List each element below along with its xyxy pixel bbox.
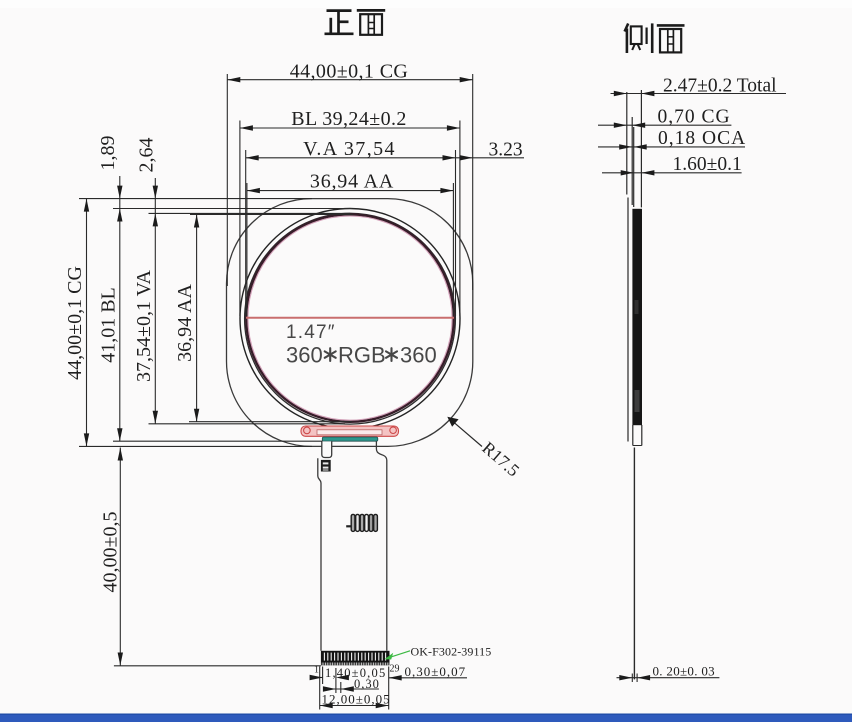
svg-text:OK-F302-39115: OK-F302-39115	[411, 645, 492, 659]
svg-text:RGB: RGB	[338, 343, 386, 368]
svg-text:0,30±0,07: 0,30±0,07	[405, 664, 467, 679]
svg-text:2,64: 2,64	[136, 138, 158, 173]
svg-text:1,89: 1,89	[97, 136, 119, 171]
svg-text:0,70 CG: 0,70 CG	[658, 106, 731, 127]
svg-text:1.60±0.1: 1.60±0.1	[673, 154, 742, 175]
svg-text:1.47″: 1.47″	[286, 322, 336, 343]
svg-text:2.47±0.2 Total: 2.47±0.2 Total	[663, 76, 777, 97]
svg-text:36,94 AA: 36,94 AA	[174, 284, 196, 362]
svg-text:37,54±0,1 VA: 37,54±0,1 VA	[133, 269, 155, 381]
svg-text:0,30: 0,30	[354, 677, 380, 691]
svg-text:V.A 37,54: V.A 37,54	[303, 138, 396, 160]
svg-text:3.23: 3.23	[488, 140, 522, 161]
svg-text:0,18 OCA: 0,18 OCA	[658, 128, 746, 149]
svg-text:41,01 BL: 41,01 BL	[98, 287, 120, 363]
svg-text:BL 39,24±0.2: BL 39,24±0.2	[291, 108, 407, 130]
svg-text:12,00±0,05: 12,00±0,05	[322, 692, 391, 707]
svg-text:40,00±0,5: 40,00±0,5	[100, 512, 122, 593]
svg-text:1: 1	[314, 665, 319, 676]
svg-text:360: 360	[400, 343, 437, 368]
svg-text:36,94 AA: 36,94 AA	[310, 171, 394, 193]
svg-text:0. 20±0. 03: 0. 20±0. 03	[653, 663, 715, 678]
svg-text:44,00±0,1 CG: 44,00±0,1 CG	[290, 61, 409, 83]
svg-text:360: 360	[286, 343, 323, 368]
svg-text:44,00±0,1 CG: 44,00±0,1 CG	[64, 266, 86, 380]
svg-text:29: 29	[390, 664, 400, 675]
